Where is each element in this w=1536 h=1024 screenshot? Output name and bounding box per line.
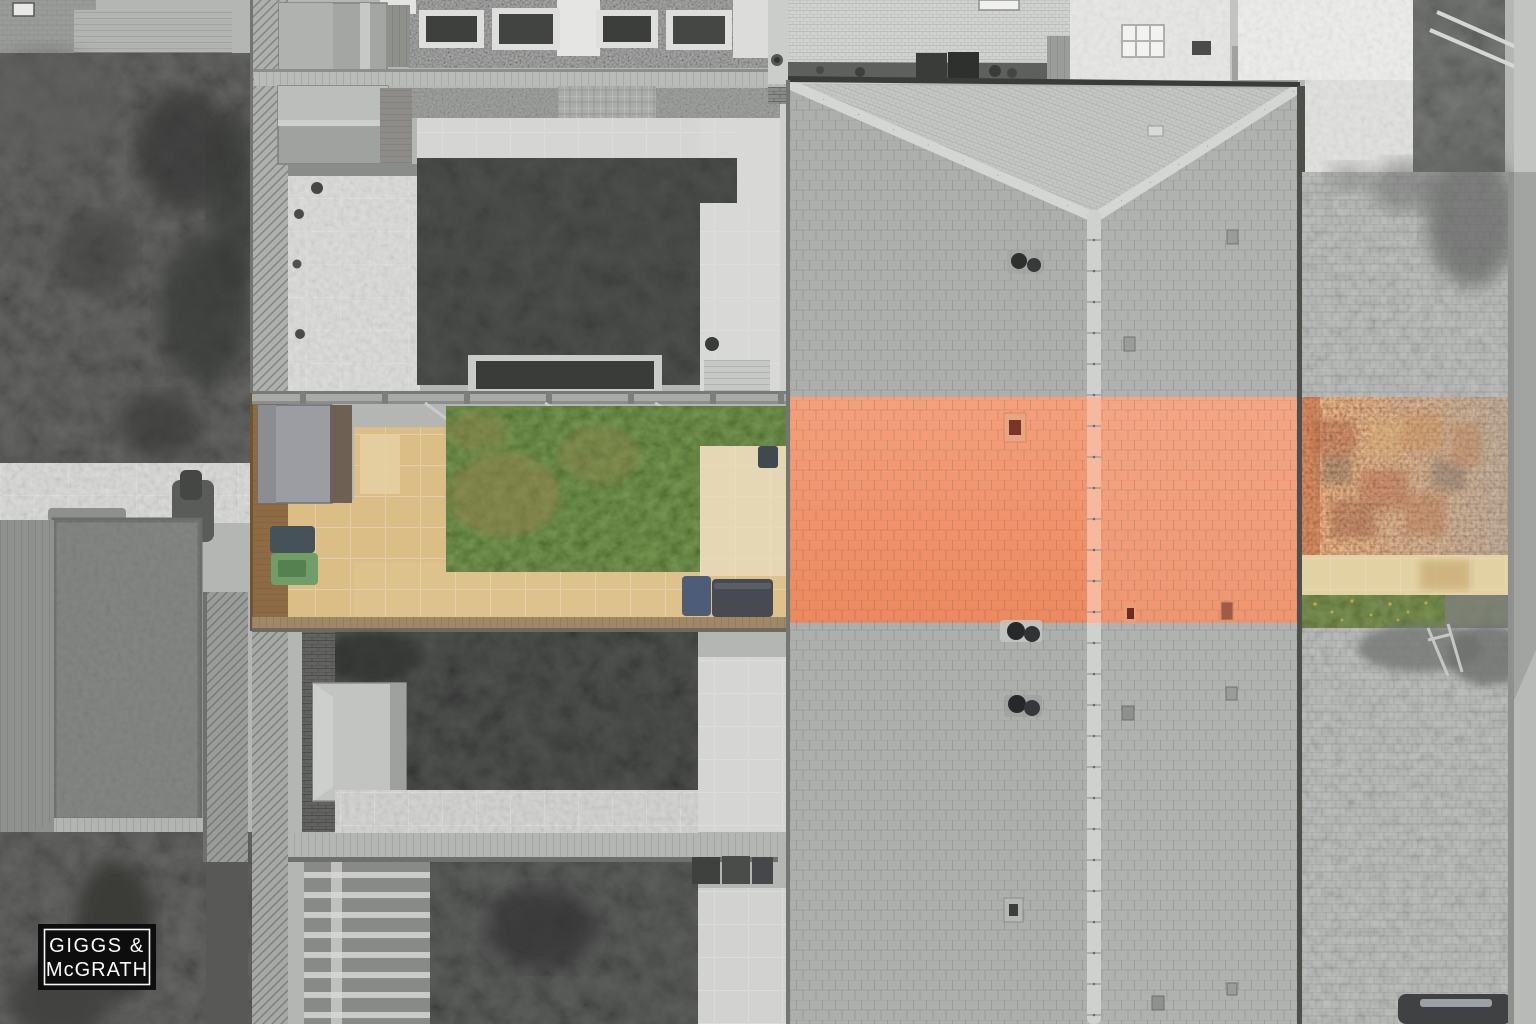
svg-text:GIGGS &: GIGGS &: [49, 935, 145, 957]
svg-text:McGRATH: McGRATH: [46, 959, 148, 981]
